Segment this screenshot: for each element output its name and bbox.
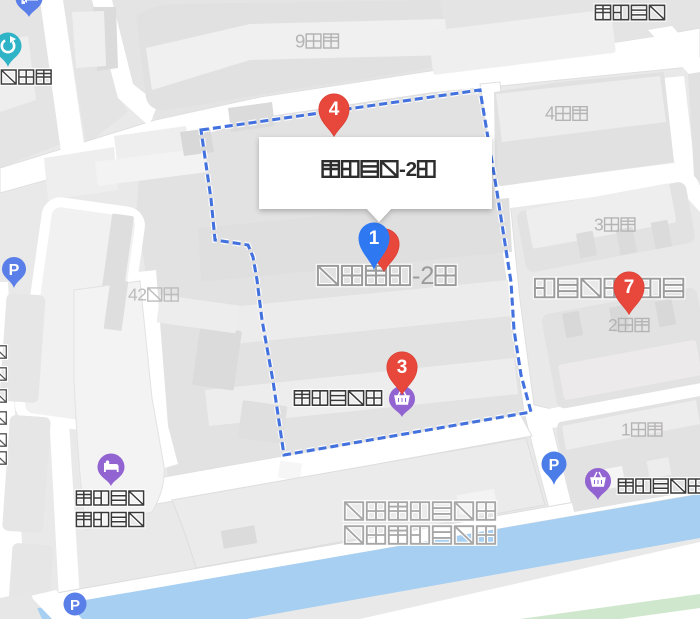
svg-text:2: 2 [406,158,418,181]
svg-text:2: 2 [420,262,434,290]
svg-text:P: P [70,597,80,614]
svg-text:3: 3 [594,214,604,234]
svg-text:1: 1 [621,419,631,439]
svg-text:2: 2 [137,284,147,304]
svg-text:4: 4 [545,104,555,124]
svg-text:7: 7 [624,277,635,298]
svg-text:1: 1 [369,228,380,249]
svg-text:3: 3 [397,357,408,378]
svg-text:-: - [412,262,420,290]
svg-text:4: 4 [329,99,340,120]
svg-text:2: 2 [608,315,618,335]
svg-text:9: 9 [295,30,305,51]
svg-text:P: P [549,457,560,474]
svg-text:P: P [9,262,20,279]
